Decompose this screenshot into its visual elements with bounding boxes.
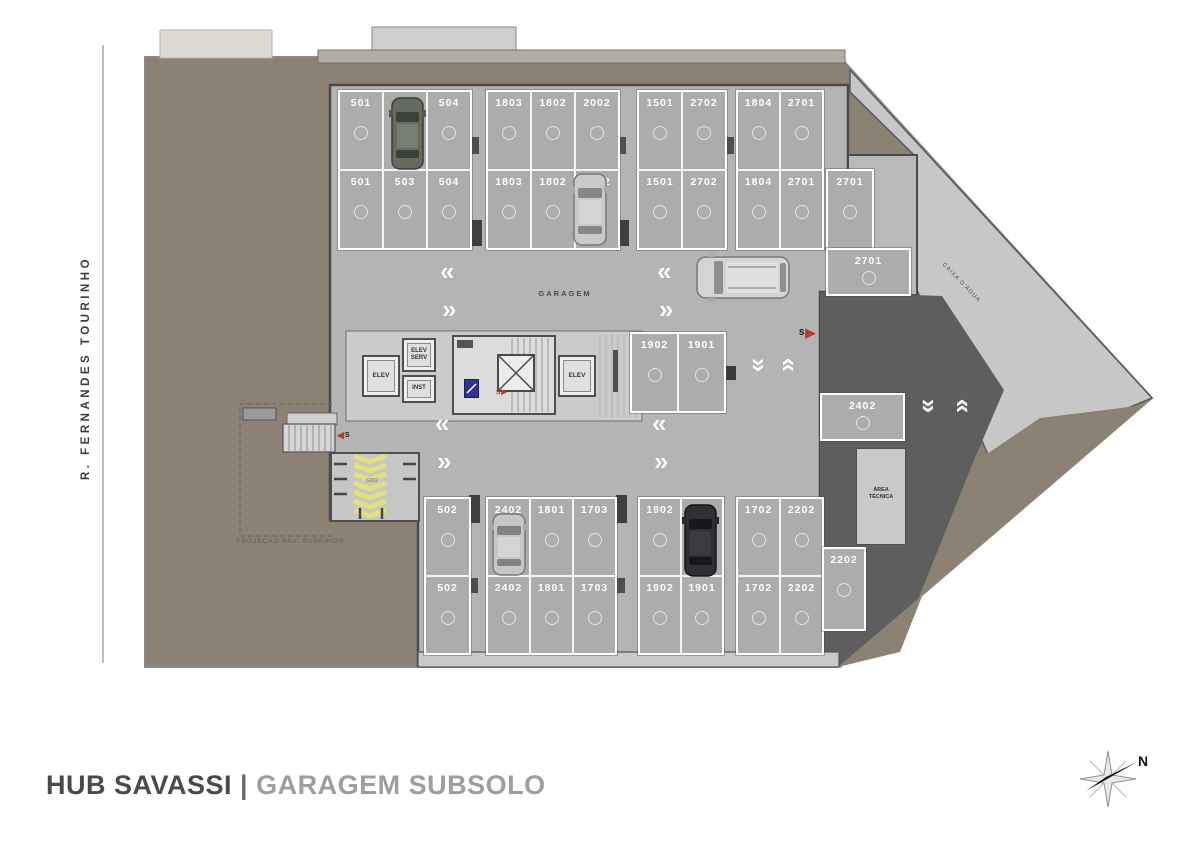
parking-space-number: 1902 [646,582,673,594]
parking-space: 2202 [781,577,822,653]
flow-chevron-icon: « [777,358,803,372]
parking-space: 2002 [576,92,618,169]
parking-group-right-2701-v: 2701 [826,169,874,250]
bike-room: GM2 [330,452,420,522]
flow-chevron-icon: « [440,258,454,284]
parking-space: 2002 [576,171,618,248]
parking-space: 1902 [640,577,680,653]
elevator-left: ELEV [362,355,400,397]
parking-group-mid-pair: 19021901 [630,332,726,413]
parking-space: 503 [384,171,426,248]
stall-index-circle [653,126,667,140]
parking-space: 1804 [738,171,779,248]
parking-space: 1801 [531,499,572,575]
stall-index-circle [546,205,560,219]
stall-index-circle [354,126,368,140]
service-elevator-label: ELEVSERV [411,348,427,363]
parking-space: 2701 [781,171,822,248]
parking-space-number: 1501 [646,176,673,188]
parking-group-bottom-mid: 240218011703240218011703 [486,497,617,655]
parking-space: 1702 [738,577,779,653]
parking-space: 1801 [531,577,572,653]
parking-space: 2701 [828,250,909,294]
stall-index-circle [695,611,709,625]
parking-space-number: 1703 [581,504,608,516]
parking-space-number: 1702 [745,582,772,594]
parking-space-number: 1803 [495,176,522,188]
projection-label: PROJEÇÃO PAV. SUPERIOR [236,538,345,545]
stall-index-circle [590,205,604,219]
stall-index-circle [752,126,766,140]
parking-space-number: 1702 [745,504,772,516]
parking-space: 1802 [532,171,574,248]
stair-hall-drawing [454,337,554,413]
parking-space: 1803 [488,171,530,248]
parking-space-number: 2202 [788,504,815,516]
parking-space-number: 2402 [495,504,522,516]
parking-space: 1501 [639,92,681,169]
parking-space: 1902 [640,499,680,575]
parking-space: 2701 [828,171,872,248]
parking-space-number: 2402 [495,582,522,594]
technical-area-label: ÁREATÉCNICA [857,487,905,501]
parking-layer: 5015035045015035041803180220021803180220… [0,0,1200,847]
stall-index-circle [795,126,809,140]
stall-index-circle [695,533,709,547]
parking-space-number: 1901 [688,582,715,594]
parking-space: 501 [340,92,382,169]
garage-label: GARAGEM [520,289,610,298]
drawing-title: HUB SAVASSI | GARAGEM SUBSOLO [46,770,546,801]
floorplan-canvas: 5015035045015035041803180220021803180220… [0,0,1200,847]
arrow-right-icon: ▶ [501,389,506,396]
parking-group-top-left: 501503504501503504 [338,90,472,250]
parking-space-number: 2002 [583,97,610,109]
parking-group-bottom-502: 502502 [424,497,471,655]
parking-space: 1803 [488,92,530,169]
service-elevator: ELEVSERV [402,338,436,372]
stall-index-circle [545,611,559,625]
parking-space: 1901 [682,577,722,653]
stall-index-circle [862,271,876,285]
elevator-left-label: ELEV [373,372,390,380]
stall-index-circle [590,126,604,140]
exterior-stair-marker: ◀ S [337,431,350,440]
parking-space: 1501 [639,171,681,248]
parking-group-top-right-b: 1804270118042701 [736,90,824,250]
north-label: N [1138,753,1148,769]
street-name: R. FERNANDES TOURINHO [80,256,92,480]
parking-space: 1702 [738,499,779,575]
bike-room-drawing [332,454,418,520]
stall-index-circle [398,126,412,140]
parking-space: 1703 [574,577,615,653]
stall-index-circle [795,533,809,547]
parking-space-number: 1902 [641,339,668,351]
ramp-entry-marker: S ▶ [799,326,815,339]
drawing-subtitle: GARAGEM SUBSOLO [256,770,546,800]
parking-space-number: 1803 [495,97,522,109]
parking-space-number: 2702 [690,97,717,109]
flow-chevron-icon: » [659,296,673,322]
parking-space-number: 2202 [788,582,815,594]
stall-index-circle [856,416,870,430]
parking-group-right-2202: 2202 [822,547,866,631]
parking-space: 2702 [683,92,725,169]
parking-space: 2701 [781,92,822,169]
parking-space-number: 503 [395,176,416,188]
parking-space: 2402 [822,395,903,439]
stall-index-circle [502,611,516,625]
flow-chevron-icon: « [951,399,977,413]
inst-room: INST [402,375,436,403]
parking-space: 2202 [781,499,822,575]
parking-space-number: 1802 [539,97,566,109]
stall-index-circle [837,583,851,597]
parking-group-right-2701-h: 2701 [826,248,911,296]
stall-index-circle [752,611,766,625]
flow-chevron-icon: « [743,358,769,372]
parking-space-number: 1501 [646,97,673,109]
stall-index-circle [502,533,516,547]
parking-space-number: 2701 [855,255,882,267]
stall-index-circle [588,611,602,625]
stall-index-circle [843,205,857,219]
flow-chevron-icon: » [437,448,451,474]
elevator-right-label: ELEV [569,372,586,380]
flow-chevron-icon: « [657,258,671,284]
parking-space-number: 1901 [688,339,715,351]
parking-space-number: 1902 [646,504,673,516]
stall-index-circle [354,205,368,219]
arrow-right-icon: ▶ [805,326,815,339]
stall-index-circle [502,205,516,219]
arrow-left-icon: ◀ [337,431,344,440]
parking-space-number: 2202 [830,554,857,566]
parking-space-number: 1801 [538,582,565,594]
stall-index-circle [588,533,602,547]
parking-space-number: 1703 [581,582,608,594]
title-separator: | [240,770,248,800]
parking-space: 1703 [574,499,615,575]
parking-space-number: 1901 [688,504,715,516]
stall-index-circle [752,205,766,219]
stall-index-circle [653,533,667,547]
parking-space: 2402 [488,577,529,653]
flow-chevron-icon: « [435,410,449,436]
stall-index-circle [442,205,456,219]
parking-space-number: 503 [395,97,416,109]
parking-space-number: 2702 [690,176,717,188]
parking-space-number: 1804 [745,97,772,109]
parking-space-number: 504 [439,97,460,109]
parking-space: 1802 [532,92,574,169]
parking-space-number: 2701 [788,176,815,188]
parking-group-right-2402-h: 2402 [820,393,905,441]
inst-room-label: INST [412,385,426,393]
flow-chevron-icon: « [913,399,939,413]
stall-index-circle [545,533,559,547]
elevator-right: ELEV [558,355,596,397]
stall-index-circle [697,205,711,219]
parking-space-number: 2701 [836,176,863,188]
hose-cabinet-icon [464,379,479,398]
parking-group-bottom-right: 1702220217022202 [736,497,824,655]
parking-space-number: 504 [439,176,460,188]
parking-space-number: 501 [351,97,372,109]
flow-chevron-icon: » [442,296,456,322]
parking-space-number: 2701 [788,97,815,109]
parking-space: 501 [340,171,382,248]
stall-index-circle [441,611,455,625]
parking-space: 2702 [683,171,725,248]
parking-group-top-mid: 180318022002180318022002 [486,90,620,250]
stair-hall: S▶ [452,335,556,415]
stall-index-circle [502,126,516,140]
parking-space: 502 [426,577,469,653]
parking-space-number: 502 [437,582,458,594]
parking-space-number: 502 [437,504,458,516]
stall-index-circle [752,533,766,547]
core-stair-direction-marker: S▶ [496,389,507,396]
parking-space: 1901 [682,499,722,575]
stall-index-circle [441,533,455,547]
parking-space: 2402 [488,499,529,575]
parking-space: 503 [384,92,426,169]
parking-space: 502 [426,499,469,575]
flow-chevron-icon: » [654,448,668,474]
bike-area-label: GM2 [366,478,378,484]
flow-chevron-icon: « [652,410,666,436]
parking-space: 1804 [738,92,779,169]
parking-space-number: 2002 [583,176,610,188]
parking-space-number: 1802 [539,176,566,188]
stall-index-circle [546,126,560,140]
parking-space-number: 501 [351,176,372,188]
parking-space: 504 [428,171,470,248]
technical-area-room: ÁREATÉCNICA [856,448,906,545]
stall-index-circle [442,126,456,140]
stall-index-circle [695,368,709,382]
parking-space-number: 1801 [538,504,565,516]
parking-space: 1902 [632,334,677,411]
parking-space-number: 1804 [745,176,772,188]
stall-index-circle [653,611,667,625]
stall-index-circle [648,368,662,382]
parking-group-top-right-a: 1501270215012702 [637,90,727,250]
stall-index-circle [795,611,809,625]
stall-index-circle [653,205,667,219]
project-name: HUB SAVASSI [46,770,232,800]
stall-index-circle [795,205,809,219]
parking-group-bottom-pair: 1902190119021901 [638,497,724,655]
parking-space: 504 [428,92,470,169]
stall-index-circle [697,126,711,140]
parking-space: 1901 [679,334,724,411]
parking-space-number: 2402 [849,400,876,412]
parking-space: 2202 [824,549,864,629]
stall-index-circle [398,205,412,219]
